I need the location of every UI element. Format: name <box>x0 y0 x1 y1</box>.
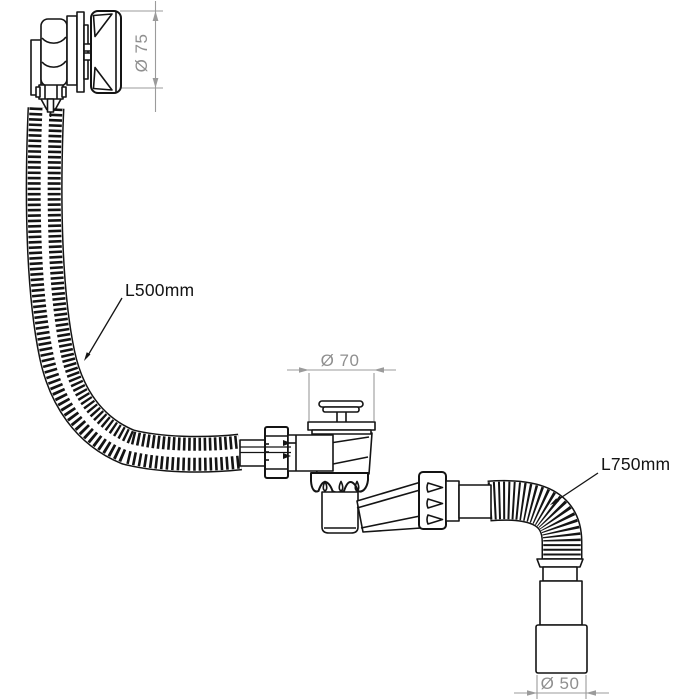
overflow-assembly <box>31 11 121 117</box>
outlet-hose-length-label: L750mm <box>601 454 670 474</box>
hose-cuff <box>459 485 491 518</box>
trap-cup <box>322 492 358 533</box>
overflow-flange <box>67 16 77 85</box>
adapter-mid-section <box>540 581 582 625</box>
tee-body <box>288 435 333 471</box>
outlet-nut <box>419 472 446 529</box>
adapter-collar <box>543 567 577 581</box>
waste-flange <box>308 422 375 434</box>
overflow-hose-length-label: L500mm <box>125 280 194 300</box>
dim-overflow-cap-label: Ø 75 <box>132 34 151 73</box>
overflow-cap-knob <box>91 11 121 93</box>
castellated-nut <box>311 473 368 493</box>
adapter-flare <box>537 559 583 567</box>
overflow-body <box>41 19 67 86</box>
outlet-adapter <box>536 559 587 673</box>
dim-waste-plug-label: Ø 70 <box>321 351 360 370</box>
leader-overflow-hose <box>84 298 122 361</box>
leader-outlet-hose <box>550 473 598 505</box>
outlet-arm <box>357 482 421 532</box>
bath-waste-drawing: Ø 75 Ø 70 Ø 50 L500mm L750mm <box>0 0 700 700</box>
technical-drawing-canvas: Ø 75 Ø 70 Ø 50 L500mm L750mm <box>0 0 700 700</box>
adapter-end-cuff <box>536 625 587 673</box>
outlet-spigot <box>446 481 459 521</box>
outlet-hose <box>489 500 562 562</box>
pop-up-plug-cap <box>319 401 363 412</box>
dim-outlet-end-label: Ø 50 <box>541 674 580 693</box>
dimension-lines <box>120 1 609 699</box>
